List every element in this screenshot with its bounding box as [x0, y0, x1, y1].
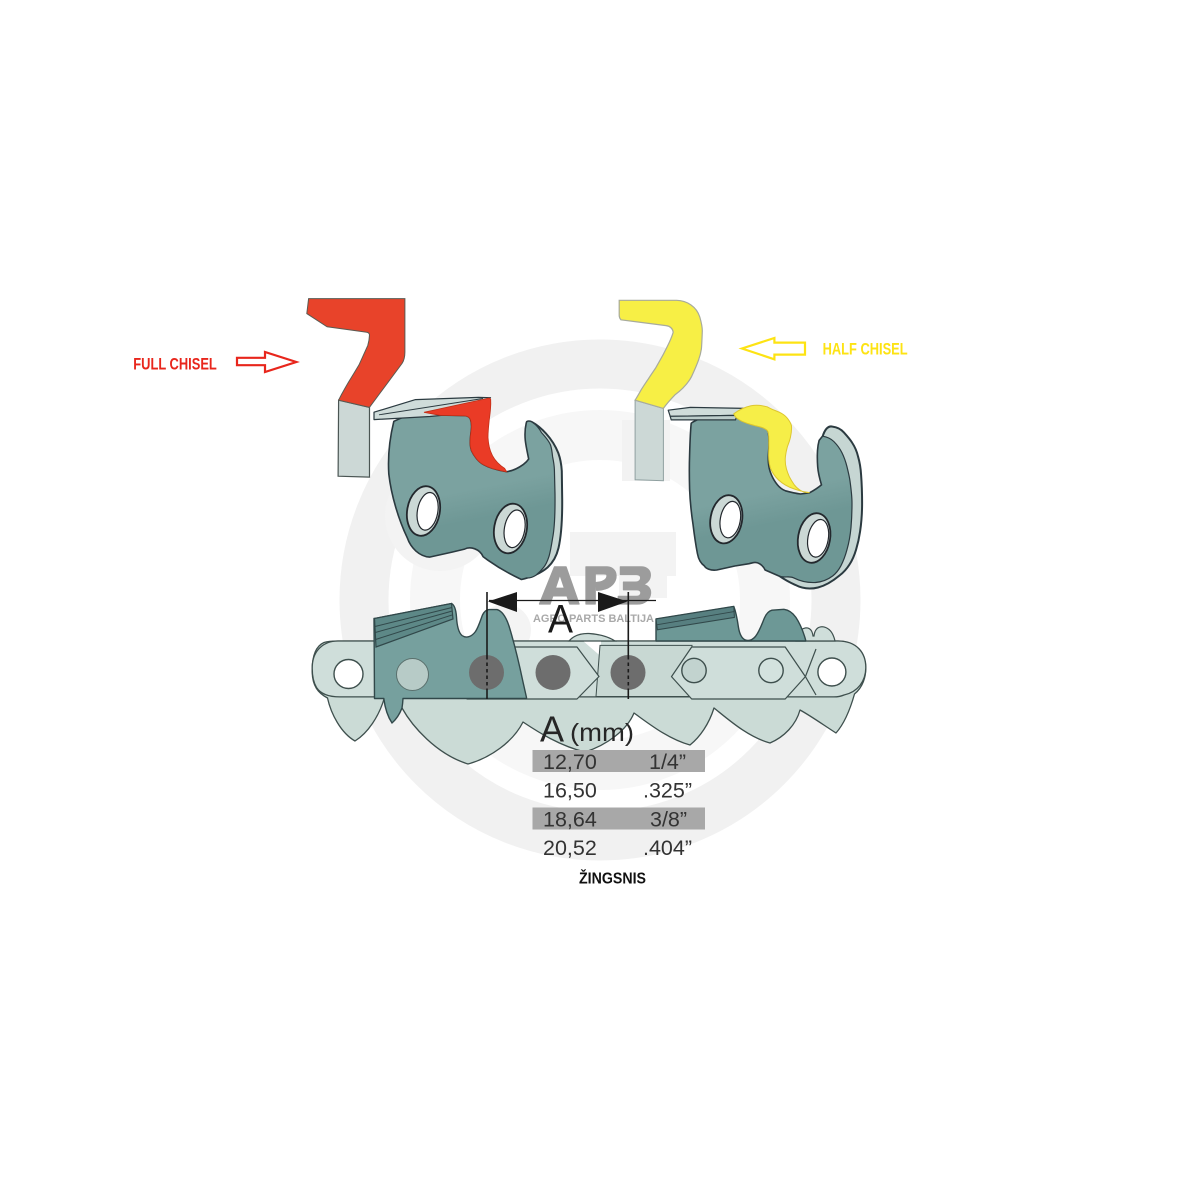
svg-text:20,52: 20,52 — [543, 836, 597, 860]
svg-text:A: A — [540, 709, 564, 750]
svg-text:3/8”: 3/8” — [650, 807, 687, 831]
svg-text:18,64: 18,64 — [543, 807, 597, 831]
svg-text:12,70: 12,70 — [543, 750, 597, 774]
svg-text:HALF CHISEL: HALF CHISEL — [823, 339, 908, 358]
svg-text:.404”: .404” — [643, 836, 692, 860]
svg-text:1/4”: 1/4” — [649, 750, 686, 774]
svg-text:(mm): (mm) — [570, 719, 634, 747]
svg-text:.325”: .325” — [643, 779, 692, 803]
svg-text:FULL CHISEL: FULL CHISEL — [133, 354, 217, 373]
svg-text:16,50: 16,50 — [543, 779, 597, 803]
svg-text:A: A — [548, 598, 573, 642]
svg-text:ŽINGSNIS: ŽINGSNIS — [579, 870, 646, 888]
